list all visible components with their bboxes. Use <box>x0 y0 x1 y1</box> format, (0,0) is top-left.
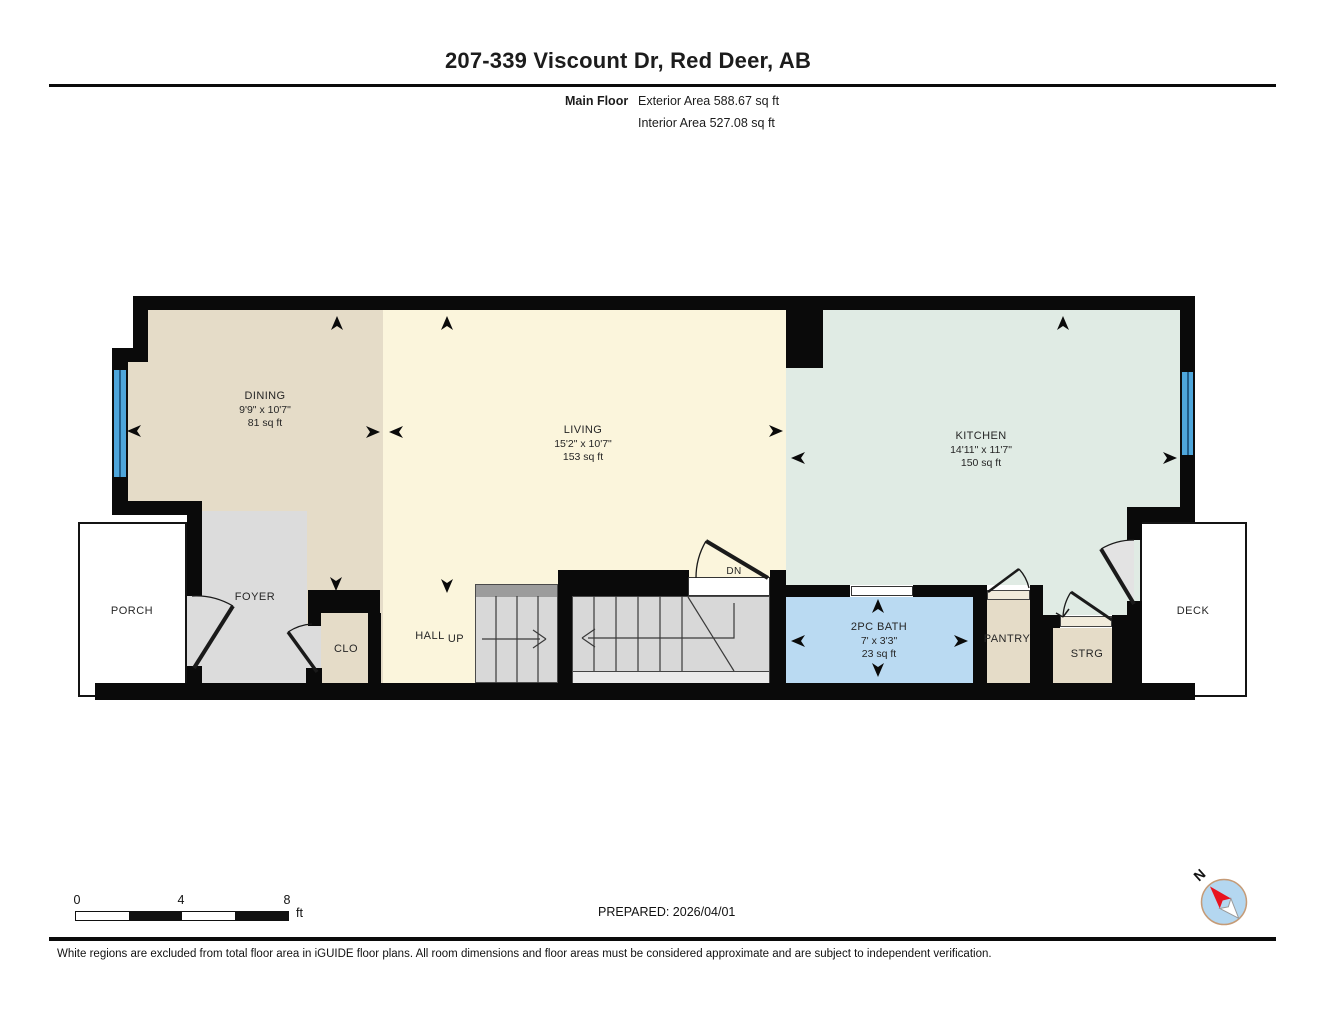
compass-circle <box>1202 880 1247 925</box>
floorplan-page: 207-339 Viscount Dr, Red Deer, AB Main F… <box>0 0 1325 1024</box>
storage-door-leaf <box>1071 592 1112 620</box>
arrow-right <box>1163 452 1177 464</box>
arrow-left <box>127 425 141 437</box>
room-label-deck: DECK <box>1177 605 1210 617</box>
arrow-up <box>331 316 343 330</box>
compass-north-label: N <box>1190 866 1208 885</box>
pantry-door-leaf <box>988 569 1019 592</box>
room-label-bath: 2PC BATH 7' x 3'3" 23 sq ft <box>851 621 907 662</box>
arrow-left <box>389 426 403 438</box>
room-label-closet: CLO <box>334 643 358 655</box>
arrow-up <box>441 316 453 330</box>
scale-tick-4: 4 <box>178 893 185 907</box>
room-label-hall: HALL <box>415 630 445 642</box>
arrow-right <box>769 425 783 437</box>
arrow-down <box>330 577 342 591</box>
arrow-left <box>791 635 805 647</box>
closet-door-arc <box>288 624 312 632</box>
arrow-right <box>366 426 380 438</box>
room-label-porch: PORCH <box>111 605 153 617</box>
room-label-living: LIVING 15'2" x 10'7" 153 sq ft <box>554 424 612 465</box>
compass-icon: N <box>1190 864 1262 936</box>
entry-door-arc <box>192 596 233 606</box>
scale-tick-0: 0 <box>74 893 81 907</box>
room-label-pantry: PANTRY <box>984 633 1031 645</box>
pantry-door-arc <box>1019 569 1029 588</box>
scale-segment <box>235 912 288 920</box>
room-label-kitchen: KITCHEN 14'11" x 11'7" 150 sq ft <box>950 430 1012 471</box>
stair-treads <box>482 596 734 683</box>
storage-door-arc <box>1063 592 1071 617</box>
stairs-up-label: UP <box>448 633 464 645</box>
room-label-storage: STRG <box>1071 648 1104 660</box>
arrow-down <box>441 579 453 593</box>
footer-divider <box>49 937 1276 941</box>
plan-annotations <box>0 0 1325 1024</box>
scale-segment <box>129 912 182 920</box>
arrow-right <box>954 635 968 647</box>
scale-bar <box>75 911 289 921</box>
scale-tick-8: 8 <box>284 893 291 907</box>
room-label-foyer: FOYER <box>235 591 275 603</box>
scale-segment <box>76 912 129 920</box>
measure-arrows <box>127 316 1177 677</box>
arrow-up <box>872 599 884 613</box>
room-label-dining: DINING 9'9" x 10'7" 81 sq ft <box>239 390 291 431</box>
disclaimer-text: White regions are excluded from total fl… <box>57 948 992 960</box>
closet-door-leaf <box>288 632 317 672</box>
scale-segment <box>182 912 235 920</box>
arrow-left <box>791 452 805 464</box>
stairs-down-label: DN <box>726 566 741 577</box>
arrow-up <box>1057 316 1069 330</box>
stair-door-arc <box>696 541 706 578</box>
arrow-down <box>872 663 884 677</box>
prepared-date: PREPARED: 2026/04/01 <box>598 905 735 919</box>
entry-door-leaf <box>194 606 233 668</box>
scale-unit: ft <box>296 906 303 920</box>
